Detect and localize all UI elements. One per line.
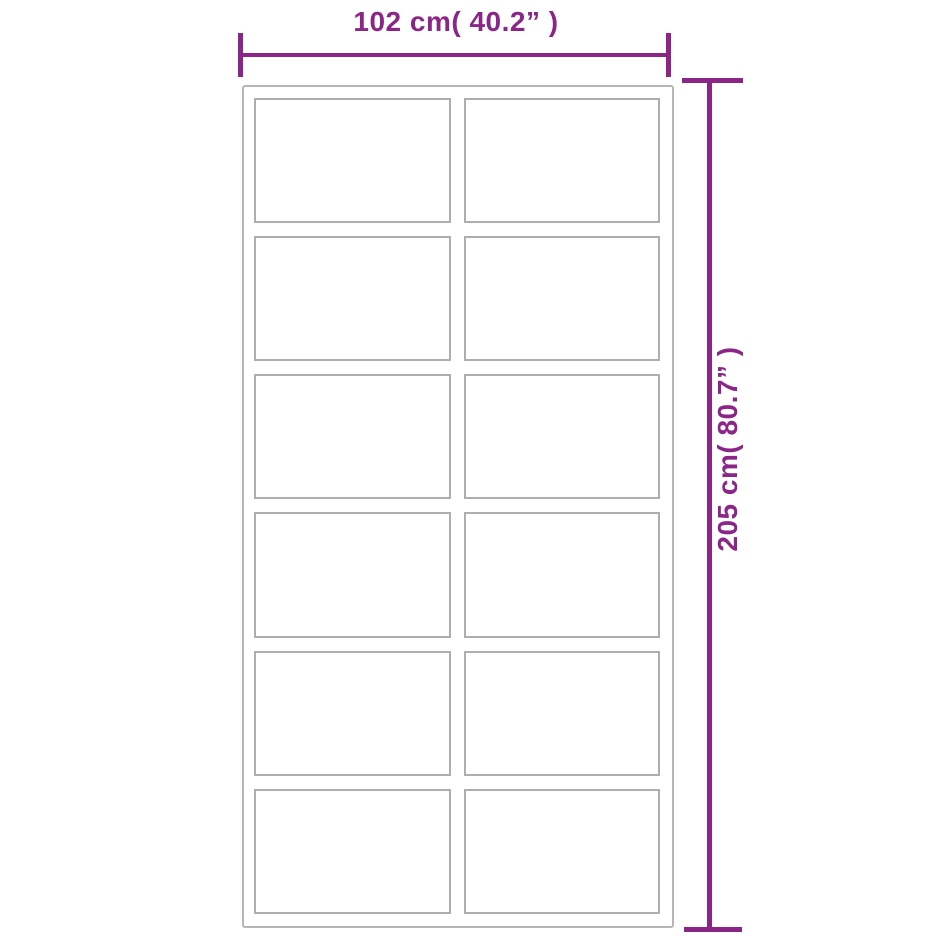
width-dimension-cap-right: [666, 33, 671, 77]
door-panel: [464, 789, 661, 914]
door-panel: [254, 512, 451, 637]
height-dimension-label: 205 cm( 80.7” ): [714, 346, 742, 551]
width-dimension-cap-left: [238, 33, 243, 77]
dimension-diagram: 102 cm( 40.2” ) 205 cm( 80.7” ): [0, 0, 947, 947]
door-panel: [464, 651, 661, 776]
door-panel: [254, 651, 451, 776]
door-panel: [254, 98, 451, 223]
door-panel: [464, 236, 661, 361]
width-dimension-line: [240, 53, 670, 57]
height-dimension-cap-top: [682, 78, 743, 83]
door-panel: [464, 374, 661, 499]
door-panel: [254, 374, 451, 499]
width-dimension-label: 102 cm( 40.2” ): [353, 8, 558, 36]
door-panel: [464, 512, 661, 637]
height-dimension-cap-bottom: [684, 927, 742, 932]
door-outline: [242, 85, 674, 928]
door-panel: [254, 789, 451, 914]
door-panel: [254, 236, 451, 361]
panel-grid: [254, 98, 660, 914]
door-panel: [464, 98, 661, 223]
